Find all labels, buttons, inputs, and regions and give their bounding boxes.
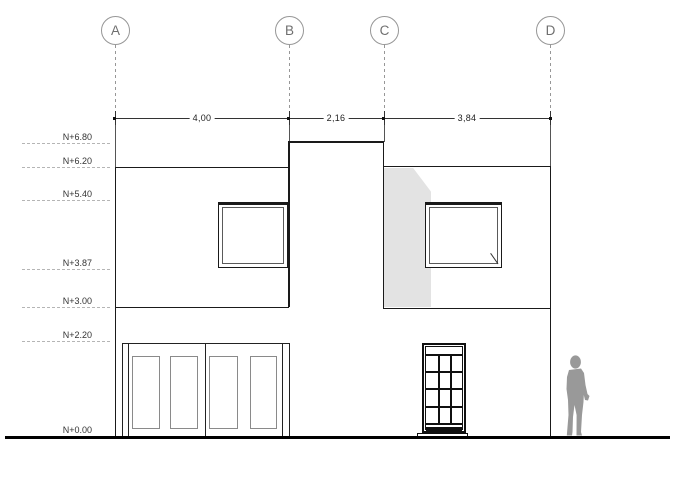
person-body: [567, 369, 590, 436]
sliding-door-left-jamb: [128, 344, 129, 437]
entry-door-muntin-h4: [426, 423, 462, 425]
grid-line-d: [550, 45, 551, 112]
grid-bubble-b: B: [275, 16, 304, 45]
entry-door: [422, 343, 466, 433]
level-label-220: N+2.20: [18, 330, 92, 340]
grid-line-b: [289, 45, 290, 112]
level-line-300: [22, 307, 112, 308]
ground-line: [5, 436, 670, 439]
elevation-drawing: A B C D 4,00 2,16 3,84 N+6.80 N+6.20 N+5…: [0, 0, 678, 491]
grid-letter-a: A: [111, 24, 120, 38]
floor-line-left-bay: [115, 307, 289, 308]
dimension-label-cd: 3,84: [455, 113, 480, 123]
grid-bubble-c: C: [370, 16, 399, 45]
grid-letter-c: C: [380, 24, 390, 38]
person-head: [570, 355, 581, 368]
upper-right-window-inner-frame: [429, 207, 498, 264]
dimension-label-bc: 2,16: [324, 113, 349, 123]
level-line-680: [22, 143, 112, 144]
grid-bubble-a: A: [101, 16, 130, 45]
upper-left-window: [218, 202, 288, 268]
sliding-door-right-jamb: [282, 344, 283, 437]
sliding-door: [122, 343, 290, 438]
level-line-540: [22, 200, 112, 201]
dimension-label-ab: 4,00: [190, 113, 215, 123]
grid-letter-d: D: [546, 24, 556, 38]
upper-right-window: [425, 202, 502, 268]
wall-right: [550, 166, 551, 437]
level-label-300: N+3.00: [18, 296, 92, 306]
grid-line-c: [384, 45, 385, 112]
wall-top-tower: [288, 141, 384, 143]
level-label-540: N+5.40: [18, 189, 92, 199]
upper-left-window-inner-frame: [222, 207, 284, 264]
entry-door-muntin-h1: [426, 371, 462, 373]
entry-door-transom-bar: [426, 354, 462, 356]
tower-wall-left: [288, 141, 290, 307]
sliding-door-panel-2: [170, 356, 198, 429]
entry-door-muntin-v2: [450, 356, 452, 425]
sliding-door-mullion: [205, 344, 206, 437]
level-label-387: N+3.87: [18, 258, 92, 268]
dimension-dot-c: [382, 117, 385, 120]
wall-top-right-bay: [383, 166, 551, 167]
grid-bubble-d: D: [536, 16, 565, 45]
sliding-door-panel-4: [250, 356, 277, 429]
shadow-hatch: [384, 168, 431, 307]
entry-door-muntin-v1: [438, 356, 440, 425]
level-label-620: N+6.20: [18, 156, 92, 166]
tower-wall-right: [383, 141, 384, 308]
level-line-387: [22, 269, 112, 270]
grid-line-a: [115, 45, 116, 112]
dimension-dot-a: [113, 117, 116, 120]
dimension-dot-b: [287, 117, 290, 120]
entry-door-muntin-h2: [426, 388, 462, 390]
sliding-door-panel-1: [132, 356, 160, 429]
wall-left: [115, 167, 116, 437]
wall-top-left-bay: [115, 167, 290, 168]
dimension-dot-d: [549, 117, 552, 120]
sliding-door-panel-3: [209, 356, 238, 429]
entry-door-bottom-rail: [426, 427, 462, 431]
level-label-000: N+0.00: [18, 425, 92, 435]
floor-line-right-bay: [383, 308, 551, 309]
level-label-680: N+6.80: [18, 132, 92, 142]
level-line-620: [22, 167, 112, 168]
grid-letter-b: B: [285, 24, 294, 38]
level-line-220: [22, 341, 112, 342]
entry-door-muntin-h3: [426, 406, 462, 408]
person-silhouette: [562, 355, 592, 438]
